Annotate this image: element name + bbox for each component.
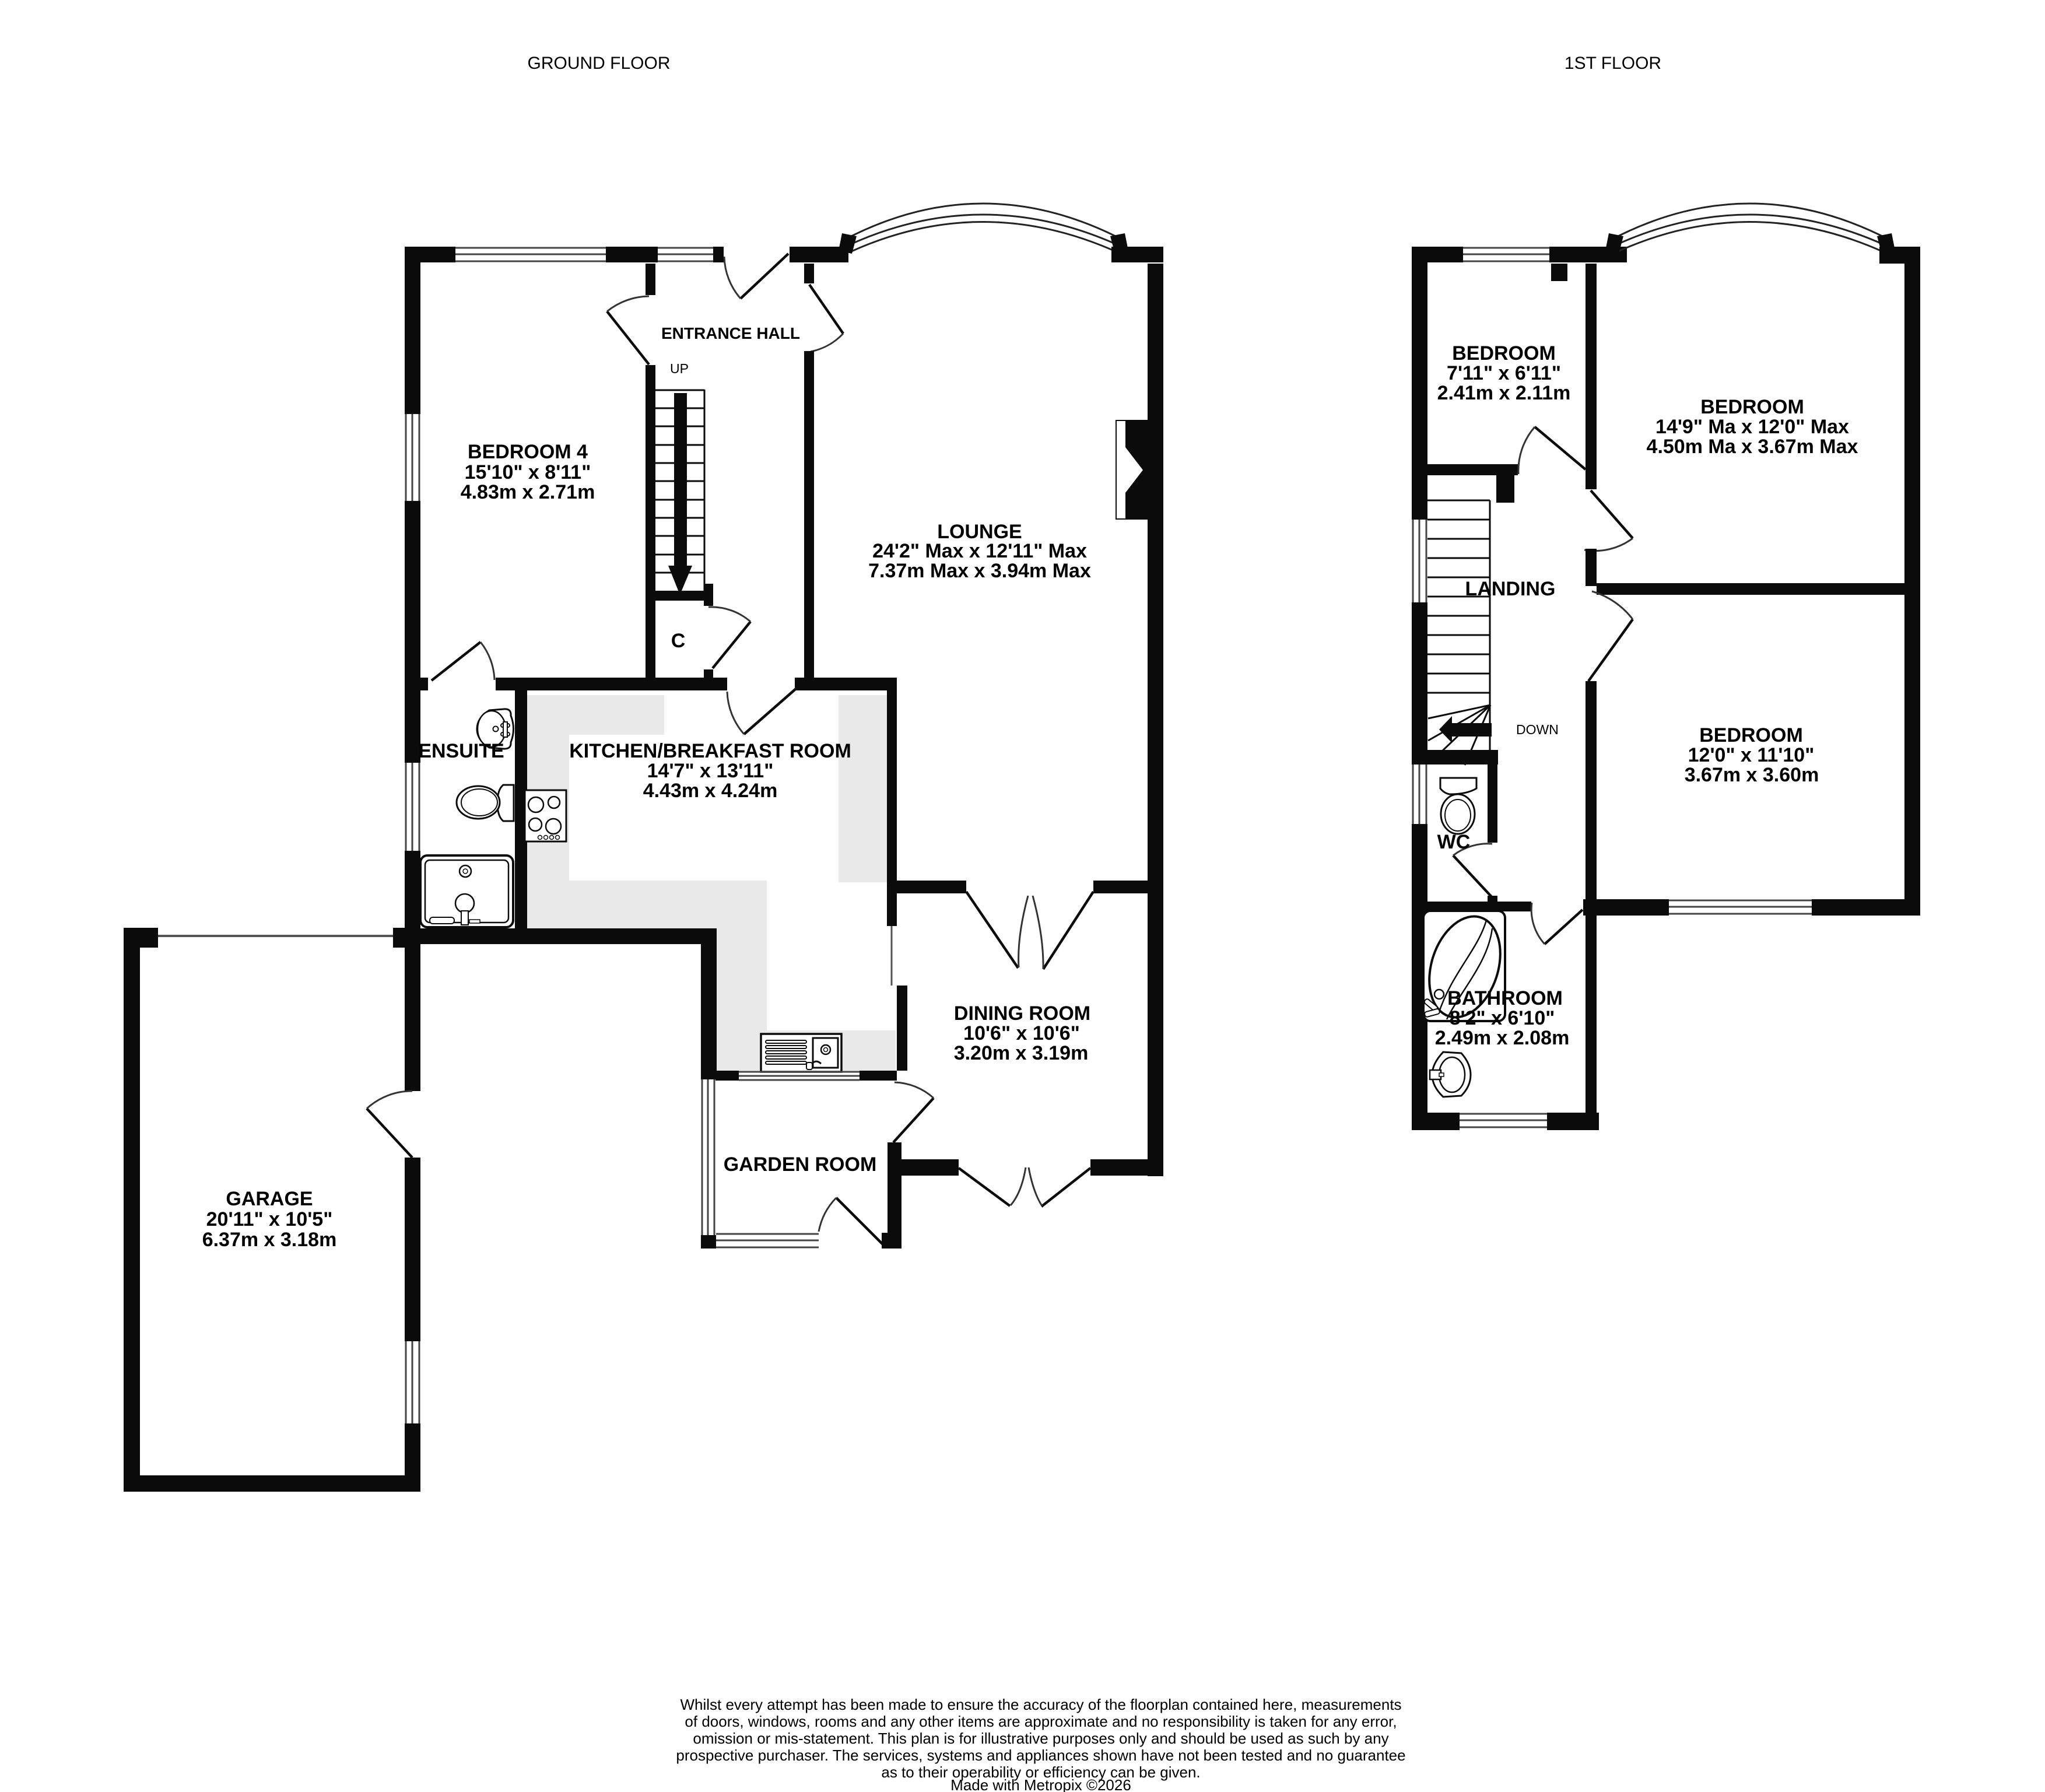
svg-text:1ST FLOOR: 1ST FLOOR — [1565, 54, 1661, 73]
svg-text:4.83m x 2.71m: 4.83m x 2.71m — [461, 481, 595, 503]
svg-text:3.20m x 3.19m: 3.20m x 3.19m — [954, 1042, 1089, 1064]
svg-text:2.41m x 2.11m: 2.41m x 2.11m — [1437, 382, 1571, 404]
svg-text:BEDROOM: BEDROOM — [1452, 342, 1556, 364]
svg-text:UP: UP — [670, 361, 689, 376]
svg-text:GARAGE: GARAGE — [226, 1188, 313, 1210]
svg-text:C: C — [671, 630, 686, 652]
svg-text:Whilst every attempt has been: Whilst every attempt has been made to en… — [680, 1696, 1401, 1713]
svg-text:BATHROOM: BATHROOM — [1447, 987, 1563, 1009]
svg-text:omission or mis-statement. Thi: omission or mis-statement. This plan is … — [693, 1730, 1388, 1747]
svg-text:of doors, windows, rooms and a: of doors, windows, rooms and any other i… — [685, 1713, 1397, 1730]
svg-text:DINING ROOM: DINING ROOM — [954, 1002, 1090, 1025]
svg-text:prospective purchaser. The ser: prospective purchaser. The services, sys… — [676, 1747, 1405, 1764]
svg-text:20'11" x 10'5": 20'11" x 10'5" — [206, 1208, 333, 1230]
svg-text:2.49m x 2.08m: 2.49m x 2.08m — [1435, 1027, 1570, 1049]
svg-text:12'0" x 11'10": 12'0" x 11'10" — [1688, 744, 1815, 766]
svg-text:ENTRANCE HALL: ENTRANCE HALL — [661, 324, 800, 342]
svg-text:7.37m Max x 3.94m Max: 7.37m Max x 3.94m Max — [868, 560, 1091, 582]
svg-text:GROUND FLOOR: GROUND FLOOR — [527, 54, 670, 73]
svg-text:Made with Metropix ©2026: Made with Metropix ©2026 — [950, 1776, 1131, 1792]
svg-text:4.43m x 4.24m: 4.43m x 4.24m — [643, 780, 778, 802]
svg-text:10'6" x 10'6": 10'6" x 10'6" — [963, 1022, 1080, 1044]
svg-text:14'9" Ma x 12'0" Max: 14'9" Ma x 12'0" Max — [1655, 416, 1849, 438]
svg-text:KITCHEN/BREAKFAST ROOM: KITCHEN/BREAKFAST ROOM — [569, 740, 851, 762]
svg-text:GARDEN ROOM: GARDEN ROOM — [724, 1153, 877, 1176]
svg-text:6.37m x 3.18m: 6.37m x 3.18m — [202, 1229, 337, 1251]
svg-text:BEDROOM: BEDROOM — [1700, 396, 1804, 418]
svg-text:14'7" x 13'11": 14'7" x 13'11" — [647, 760, 774, 782]
svg-text:ENSUITE: ENSUITE — [418, 740, 504, 762]
svg-text:3.67m x 3.60m: 3.67m x 3.60m — [1685, 764, 1819, 786]
svg-text:BEDROOM: BEDROOM — [1699, 724, 1803, 746]
svg-text:DOWN: DOWN — [1516, 722, 1559, 737]
svg-text:24'2" Max x 12'11" Max: 24'2" Max x 12'11" Max — [872, 540, 1087, 562]
svg-text:8'2" x 6'10": 8'2" x 6'10" — [1450, 1007, 1555, 1029]
svg-text:WC: WC — [1437, 831, 1471, 853]
svg-text:15'10" x 8'11": 15'10" x 8'11" — [465, 461, 591, 483]
svg-text:BEDROOM 4: BEDROOM 4 — [468, 441, 588, 463]
svg-text:LANDING: LANDING — [1465, 578, 1556, 600]
svg-text:7'11" x 6'11": 7'11" x 6'11" — [1447, 362, 1561, 384]
svg-text:4.50m Ma x 3.67m Max: 4.50m Ma x 3.67m Max — [1647, 436, 1858, 458]
